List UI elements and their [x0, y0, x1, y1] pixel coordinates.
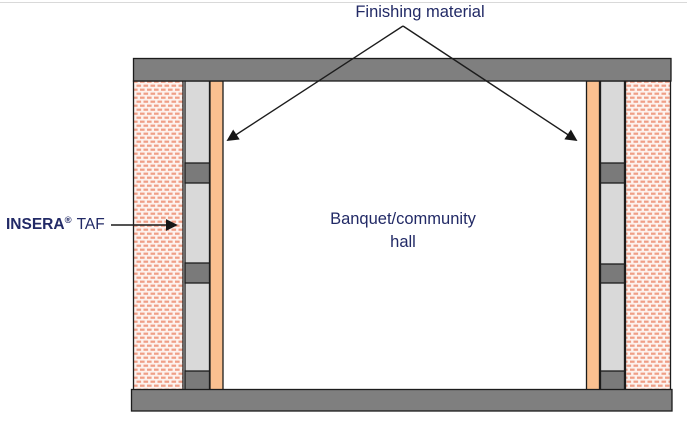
- registered-trademark-symbol: ®: [65, 215, 72, 226]
- top-slab: [134, 59, 672, 82]
- right-spacer-block-1: [601, 163, 625, 183]
- right-spacer-block-2: [601, 264, 625, 283]
- insera-brand-text: INSERA: [6, 216, 65, 233]
- insera-taf-label: INSERA®TAF: [6, 215, 116, 234]
- hall-label: Banquet/community hall: [303, 208, 503, 254]
- left-spacer-block-1: [185, 163, 210, 183]
- bottom-slab: [132, 390, 673, 412]
- right-brick-wall: [626, 81, 671, 390]
- finishing-material-right-arrow: [403, 26, 576, 140]
- left-finishing-layer: [210, 81, 223, 390]
- insera-suffix-text: TAF: [77, 216, 105, 233]
- left-spacer-block-2: [185, 263, 210, 283]
- finishing-material-label: Finishing material: [330, 3, 510, 22]
- diagram-canvas: Finishing material INSERA®TAF Banquet/co…: [0, 0, 687, 423]
- right-finishing-layer: [587, 81, 600, 390]
- right-insera-taf-panel: [601, 81, 625, 390]
- left-insera-taf-panel: [185, 81, 210, 390]
- left-spacer-block-3: [185, 371, 210, 390]
- finishing-material-left-arrow: [228, 26, 403, 140]
- right-spacer-block-3: [601, 371, 625, 390]
- left-brick-wall: [134, 81, 184, 390]
- hall-label-line1: Banquet/community: [303, 208, 503, 231]
- hall-label-line2: hall: [303, 231, 503, 254]
